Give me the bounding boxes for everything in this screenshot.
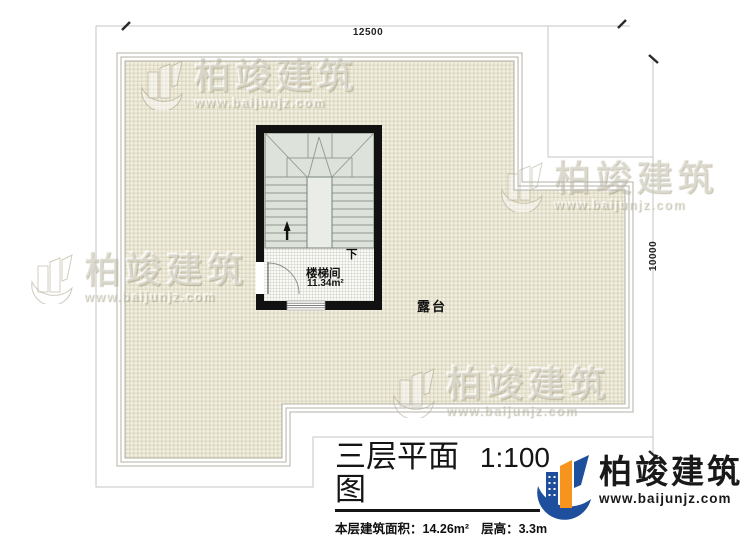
title-block: 三层平面图 1:100 本层建筑面积：14.26m²层高：3.3m [335, 441, 550, 537]
logo-brand: 柏竣建筑 [599, 455, 743, 490]
watermark-logo-icon [30, 252, 76, 304]
terrace-hatch-area [117, 53, 633, 466]
stair-down-label: 下 [346, 246, 358, 262]
terrace-label: 露台 [417, 296, 447, 315]
floor-area-value: 14.26m² [423, 522, 470, 536]
floor-area-label: 本层建筑面积： [335, 522, 423, 536]
watermark-website: www.baijunjz.com [446, 404, 610, 418]
logo-icon-space [537, 455, 593, 519]
stair-room-area: 11.34m² [307, 278, 344, 289]
logo-website: www.baijunjz.com [599, 491, 743, 506]
plan-title: 三层平面图 [335, 441, 470, 506]
floor-height-value: 3.3m [519, 522, 548, 536]
company-logo: 柏竣建筑 www.baijunjz.com [537, 455, 743, 519]
floor-plan-page: { "drawing": { "dim_top": "12500", "dim_… [0, 0, 750, 530]
floor-height-label: 层高： [481, 522, 519, 536]
staircase-fill [265, 133, 374, 248]
dimension-right-label: 10000 [648, 234, 660, 278]
title-underline [335, 509, 540, 512]
plan-info-line: 本层建筑面积：14.26m²层高：3.3m [335, 518, 550, 537]
dimension-top-label: 12500 [345, 27, 391, 38]
